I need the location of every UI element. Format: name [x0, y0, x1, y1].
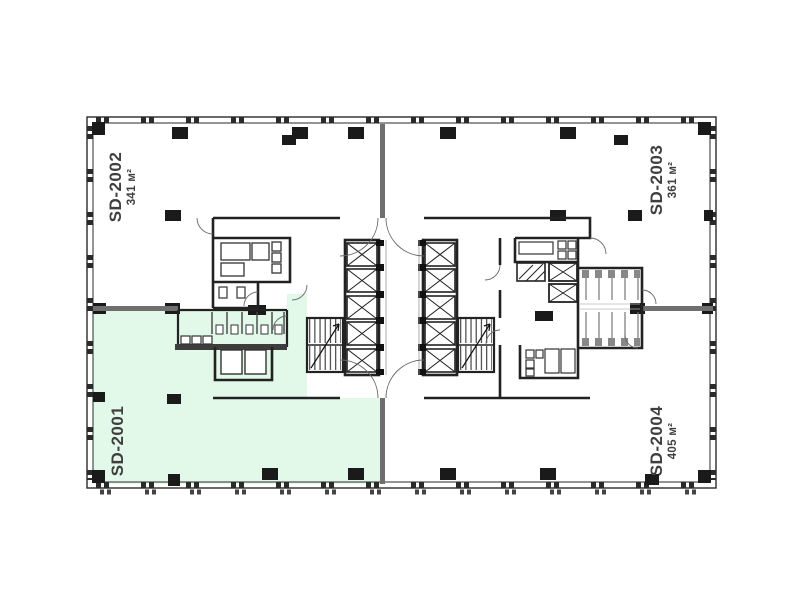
wall-sd2002-sd2001: [93, 306, 178, 311]
wall-sd2002-sd2003: [380, 124, 385, 218]
floor-plan-canvas: SD-2002 341 м² SD-2003 361 м² SD-2001 SD…: [0, 0, 800, 600]
staircase-right: [458, 318, 494, 372]
sink-row: [181, 336, 212, 344]
unit-id-sd-2002: SD-2002: [106, 152, 125, 223]
unit-area-sd-2003: 361 м²: [667, 162, 679, 199]
staircase-left: [307, 318, 343, 372]
unit-id-sd-2001: SD-2001: [108, 406, 127, 477]
floor-plan: SD-2002 341 м² SD-2003 361 м² SD-2001 SD…: [0, 0, 800, 600]
elevator-bank-left: [345, 240, 384, 375]
label-sd-2001: SD-2001: [108, 406, 127, 477]
wall-sd2001-sd2004: [380, 398, 385, 484]
elevator-bank-right: [418, 240, 457, 375]
unit-region-sd-2002[interactable]: [93, 124, 381, 307]
unit-area-sd-2004: 405 м²: [667, 423, 679, 460]
utility-room-right: [526, 349, 575, 376]
unit-id-sd-2004: SD-2004: [647, 406, 666, 477]
wall-sd2003-sd2004: [642, 306, 713, 311]
hatched-shaft: [517, 263, 545, 281]
unit-area-sd-2002: 341 м²: [126, 169, 138, 206]
unit-id-sd-2003: SD-2003: [647, 145, 666, 216]
